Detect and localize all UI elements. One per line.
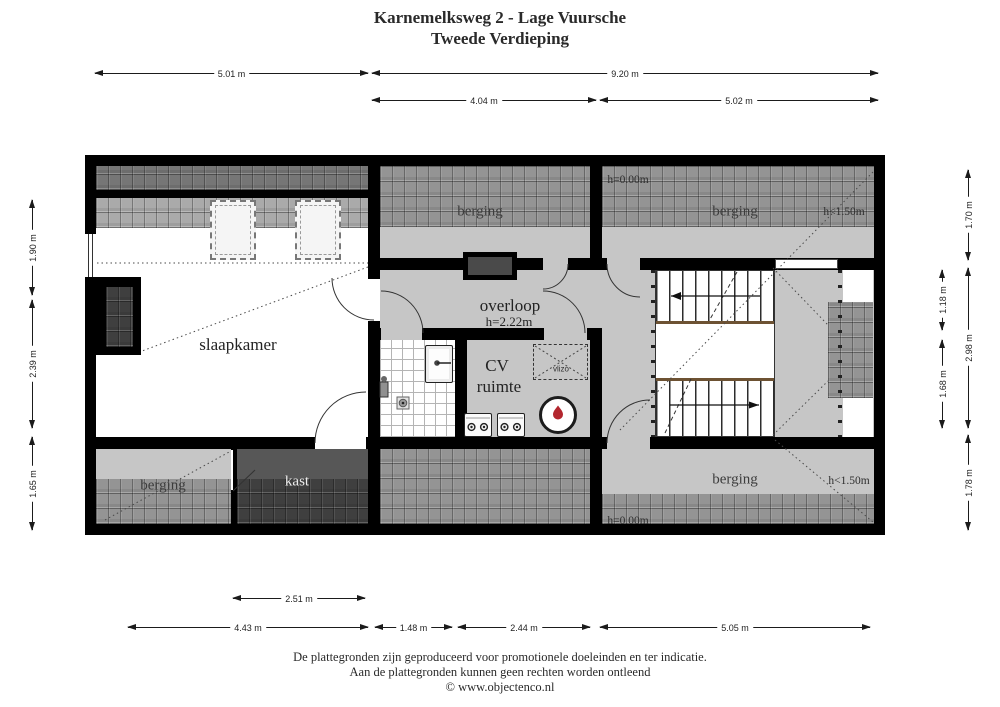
page-title-line2: Tweede Verdieping bbox=[0, 29, 1000, 49]
roof-strip-top-left bbox=[96, 166, 368, 190]
berging-floor bbox=[602, 227, 874, 258]
dim-left-1-90: 1.90 m bbox=[32, 200, 33, 295]
dim-label: 1.48 m bbox=[396, 623, 432, 633]
dim-right-1-78: 1.78 m bbox=[968, 435, 969, 530]
footer-disclaimer-line1: De plattegronden zijn geproduceerd voor … bbox=[0, 650, 1000, 665]
page-title-line1: Karnemelksweg 2 - Lage Vuursche bbox=[0, 8, 1000, 28]
label-berging-bottom-right: berging bbox=[712, 472, 758, 489]
dim-label: 1.68 m bbox=[938, 366, 948, 402]
dim-label: 9.20 m bbox=[607, 69, 643, 79]
floorplan-page: { "title": { "line1": "Karnemelksweg 2 -… bbox=[0, 0, 1000, 707]
appliance bbox=[497, 413, 525, 437]
footer-copyright: © www.objectenco.nl bbox=[0, 680, 1000, 695]
dim-right-1-70: 1.70 m bbox=[968, 170, 969, 260]
label-height-zero-top: h=0.00m bbox=[607, 174, 648, 186]
railing-right bbox=[838, 270, 842, 437]
label-overloop: overloop bbox=[480, 296, 540, 316]
roof-strip-bottom-middle bbox=[380, 449, 590, 524]
cv-boiler bbox=[539, 396, 577, 434]
dim-label: 2.44 m bbox=[506, 623, 542, 633]
dim-right-1-18: 1.18 m bbox=[942, 270, 943, 330]
label-kast: kast bbox=[285, 474, 309, 491]
label-berging-top-middle: berging bbox=[457, 204, 503, 221]
dim-right-2-98: 2.98 m bbox=[968, 268, 969, 428]
label-vlizo: vlizo bbox=[553, 365, 569, 374]
skylight-inner-frame bbox=[300, 205, 336, 255]
dim-bottom-1-48: 1.48 m bbox=[375, 627, 452, 628]
door-opening bbox=[315, 437, 366, 449]
dim-label: 1.18 m bbox=[938, 282, 948, 318]
dim-top-4-04: 4.04 m bbox=[372, 100, 596, 101]
staircase bbox=[655, 270, 775, 437]
berging-floor bbox=[96, 449, 231, 479]
dim-right-1-68: 1.68 m bbox=[942, 340, 943, 428]
dim-label: 5.05 m bbox=[717, 623, 753, 633]
door-opening bbox=[543, 258, 568, 270]
dim-label: 1.70 m bbox=[964, 197, 974, 233]
chimney-on-wall bbox=[463, 252, 517, 280]
void-strip-bottom bbox=[843, 398, 873, 437]
dim-label: 2.98 m bbox=[964, 330, 974, 366]
dormer-roof-patch bbox=[828, 302, 873, 398]
window-left-wall bbox=[85, 233, 96, 278]
label-berging-bottom-left: berging bbox=[140, 478, 186, 495]
sink bbox=[425, 345, 453, 383]
door-opening bbox=[607, 437, 650, 449]
door-opening bbox=[607, 258, 640, 270]
label-slaapkamer: slaapkamer bbox=[199, 335, 276, 355]
label-overloop-height: h=2.22m bbox=[486, 314, 533, 330]
skylight-inner-frame bbox=[215, 205, 251, 255]
dim-label: 4.43 m bbox=[230, 623, 266, 633]
door-opening bbox=[381, 328, 422, 340]
dim-top-9-20: 9.20 m bbox=[372, 73, 878, 74]
dim-top-5-01: 5.01 m bbox=[95, 73, 368, 74]
dim-label: 5.02 m bbox=[721, 96, 757, 106]
appliance bbox=[464, 413, 492, 437]
dim-bottom-4-43: 4.43 m bbox=[128, 627, 368, 628]
dim-label: 5.01 m bbox=[214, 69, 250, 79]
label-height-low-top: h<1.50m bbox=[823, 206, 864, 218]
dim-bottom-2-44: 2.44 m bbox=[458, 627, 590, 628]
label-berging-top-right: berging bbox=[712, 204, 758, 221]
label-cv-line2: ruimte bbox=[477, 377, 521, 397]
stair-landing bbox=[656, 324, 774, 378]
label-height-zero-bottom: h=0.00m bbox=[607, 515, 648, 527]
footer-disclaimer-line2: Aan de plattegronden kunnen geen rechten… bbox=[0, 665, 1000, 680]
stair-flight-down bbox=[656, 378, 774, 436]
floor-plan: slaapkamer overloop h=2.22m CV ruimte be… bbox=[85, 155, 885, 535]
railing-stairs-west bbox=[651, 270, 655, 437]
stair-flight-up bbox=[656, 271, 774, 324]
dim-top-5-02: 5.02 m bbox=[600, 100, 878, 101]
skylight-window bbox=[295, 200, 341, 260]
dim-label: 1.90 m bbox=[28, 230, 38, 266]
label-cv-line1: CV bbox=[485, 356, 509, 376]
overloop-corridor bbox=[602, 328, 655, 437]
dim-label: 4.04 m bbox=[466, 96, 502, 106]
dim-label: 2.39 m bbox=[28, 346, 38, 382]
dim-left-1-65: 1.65 m bbox=[32, 437, 33, 530]
dim-label: 1.78 m bbox=[964, 465, 974, 501]
void-strip-top bbox=[843, 270, 873, 302]
dim-bottom-5-05: 5.05 m bbox=[600, 627, 870, 628]
skylight-window bbox=[210, 200, 256, 260]
dim-left-2-39: 2.39 m bbox=[32, 300, 33, 428]
dim-label: 2.51 m bbox=[281, 594, 317, 604]
door-opening bbox=[368, 279, 380, 321]
low-wall-railing bbox=[775, 259, 838, 269]
chimney-roof-tiles bbox=[106, 287, 133, 347]
dim-bottom-2-51: 2.51 m bbox=[233, 598, 365, 599]
dim-label: 1.65 m bbox=[28, 466, 38, 502]
label-height-low-bottom: h<1.50m bbox=[828, 475, 869, 487]
vlizo-hatch bbox=[533, 344, 588, 380]
door-opening bbox=[544, 328, 587, 340]
